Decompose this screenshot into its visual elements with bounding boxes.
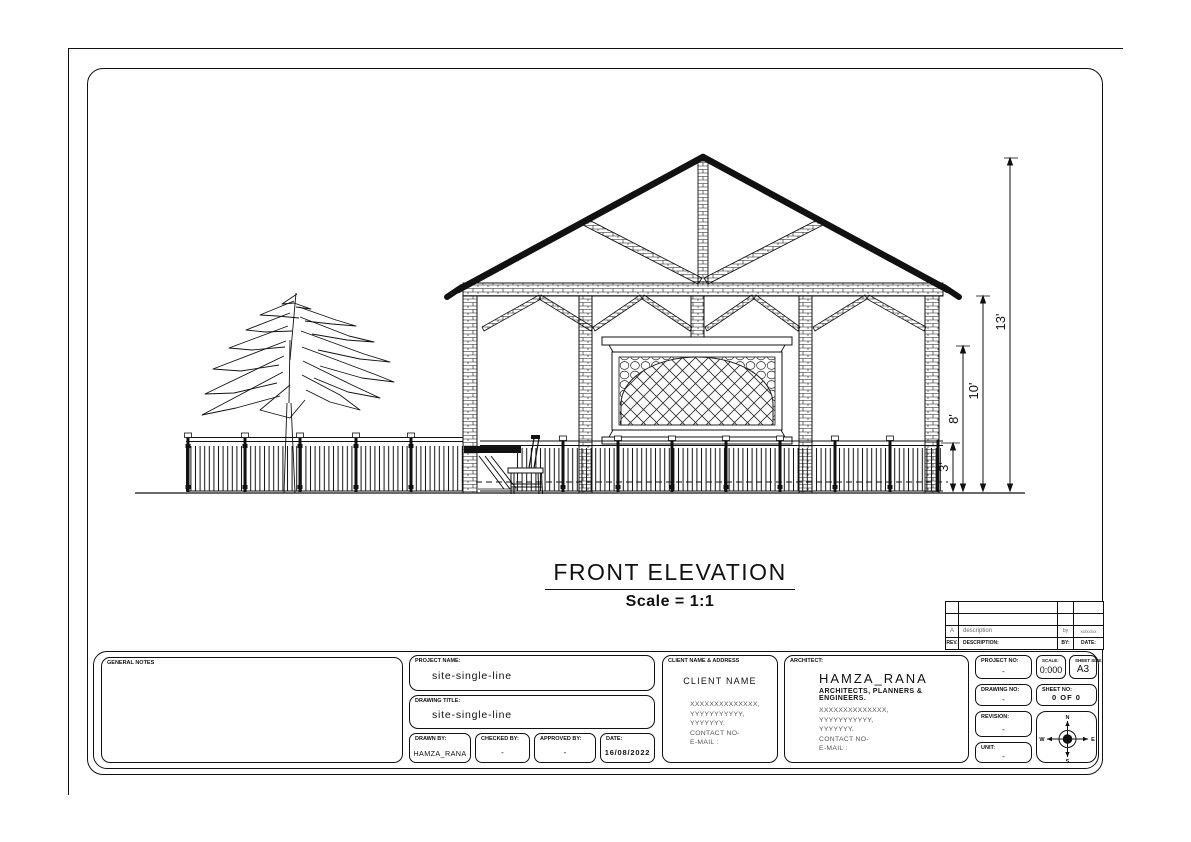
date-label: DATE: xyxy=(606,736,622,742)
sheet-size-value: A3 xyxy=(1070,664,1096,675)
drawing-title-value: site-single-line xyxy=(432,709,512,721)
rev-empty-cell xyxy=(1057,613,1073,625)
general-notes-box: GENERAL NOTES xyxy=(101,657,403,763)
dim-3ft: 3' xyxy=(936,462,951,472)
rev-empty-cell xyxy=(958,613,1057,625)
view-scale: Scale = 1:1 xyxy=(520,593,820,611)
rev-empty-cell xyxy=(945,613,958,625)
king-post xyxy=(698,161,708,283)
revision-label: REVISION: xyxy=(981,714,1009,720)
date-box: DATE: 16/08/2022 xyxy=(600,733,655,763)
unit-box: UNIT: - xyxy=(975,742,1032,763)
client-box: CLIENT NAME & ADDRESS CLIENT NAME XXXXXX… xyxy=(662,655,778,763)
scale-box: SCALE: 0:000 xyxy=(1036,655,1066,679)
client-address-line: YYYYYYYYYYY, xyxy=(690,710,760,720)
unit-value: - xyxy=(976,752,1031,761)
view-title: FRONT ELEVATION xyxy=(545,559,794,590)
checked-by-value: - xyxy=(476,748,529,757)
north-compass-icon: N E S W xyxy=(1037,712,1098,764)
drawing-no-label: DRAWING NO: xyxy=(981,687,1019,693)
project-name-box: PROJECT NAME: site-single-line xyxy=(409,655,655,691)
compass-n: N xyxy=(1066,715,1070,721)
project-no-box: PROJECT NO: - xyxy=(975,655,1032,679)
drawn-by-box: DRAWN BY: HAMZA_RANA xyxy=(409,733,471,763)
checked-by-box: CHECKED BY: - xyxy=(475,733,530,763)
architect-label: ARCHITECT: xyxy=(790,658,823,664)
drawing-title-caption: FRONT ELEVATION Scale = 1:1 xyxy=(520,559,820,611)
architect-name: HAMZA_RANA xyxy=(819,671,928,686)
rev-empty-cell xyxy=(1073,613,1103,625)
compass-e: E xyxy=(1091,737,1095,743)
general-notes-label: GENERAL NOTES xyxy=(107,660,154,666)
rev-header-date: DATE: xyxy=(1073,637,1103,649)
dimension-labels: 3' 8' 10' 13' xyxy=(936,314,1008,472)
approved-by-value: - xyxy=(535,748,595,757)
rev-empty-cell xyxy=(958,601,1057,613)
architect-address: XXXXXXXXXXXXXX, YYYYYYYYYYY, YYYYYYY. CO… xyxy=(819,706,889,754)
eave-beam xyxy=(463,283,943,296)
rev-empty-cell xyxy=(945,601,958,613)
dim-13ft: 13' xyxy=(993,314,1008,331)
revision-table: A description by xx/xx/xx REV. DESCRIPTI… xyxy=(945,601,1104,650)
railing-left xyxy=(185,433,464,492)
rev-row-date: xx/xx/xx xyxy=(1073,625,1103,637)
drawing-sheet: 3' 8' 10' 13' FRONT ELEVATION Scale = 1:… xyxy=(0,0,1191,842)
approved-by-label: APPROVED BY: xyxy=(540,736,581,742)
drawing-title-label: DRAWING TITLE: xyxy=(415,698,460,704)
dim-8ft: 8' xyxy=(946,414,961,424)
project-name-value: site-single-line xyxy=(432,670,512,682)
client-address-line: CONTACT NO- xyxy=(690,729,760,739)
drawn-by-value: HAMZA_RANA xyxy=(410,749,470,758)
drawn-by-label: DRAWN BY: xyxy=(415,736,446,742)
rev-empty-cell xyxy=(1057,601,1073,613)
project-name-label: PROJECT NAME: xyxy=(415,658,461,664)
drawing-no-value: - xyxy=(976,695,1031,704)
project-no-value: - xyxy=(976,667,1031,676)
revision-value: - xyxy=(976,725,1031,734)
dim-10ft: 10' xyxy=(966,383,981,400)
rev-header-by: BY: xyxy=(1057,637,1073,649)
sheet-no-value: 0 OF 0 xyxy=(1037,693,1096,702)
architect-subtitle: ARCHITECTS, PLANNERS & ENGINEERS. xyxy=(819,688,968,702)
scale-value: 0:000 xyxy=(1037,665,1065,675)
client-address-line: E-MAIL : xyxy=(690,738,760,748)
project-no-label: PROJECT NO: xyxy=(981,658,1019,664)
checked-by-label: CHECKED BY: xyxy=(481,736,519,742)
sheet-size-box: SHEET SIZE: A3 xyxy=(1069,655,1097,679)
rev-row-letter: A xyxy=(945,625,958,637)
architect-address-line: YYYYYYYYYYY, xyxy=(819,716,889,726)
scale-label: SCALE: xyxy=(1042,658,1059,663)
date-value: 16/08/2022 xyxy=(601,748,654,757)
architect-address-line: YYYYYYY. xyxy=(819,725,889,735)
rev-header-rev: REV. xyxy=(945,637,958,649)
client-address-line: XXXXXXXXXXXXXX, xyxy=(690,700,760,710)
rev-row-description: description xyxy=(958,625,1057,637)
drawing-no-box: DRAWING NO: - xyxy=(975,684,1032,706)
client-address-line: YYYYYYY. xyxy=(690,719,760,729)
architect-address-line: E-MAIL : xyxy=(819,744,889,754)
rev-empty-cell xyxy=(1073,601,1103,613)
revision-box: REVISION: - xyxy=(975,711,1032,737)
sheet-no-box: SHEET NO: 0 OF 0 xyxy=(1036,684,1097,706)
lattice-panel xyxy=(602,337,792,444)
compass-w: W xyxy=(1039,737,1045,743)
client-name: CLIENT NAME xyxy=(663,676,777,686)
unit-label: UNIT: xyxy=(981,745,995,751)
architect-address-line: XXXXXXXXXXXXXX, xyxy=(819,706,889,716)
compass-s: S xyxy=(1066,759,1070,764)
client-address: XXXXXXXXXXXXXX, YYYYYYYYYYY, YYYYYYY. CO… xyxy=(690,700,760,748)
approved-by-box: APPROVED BY: - xyxy=(534,733,596,763)
compass-box: N E S W xyxy=(1036,711,1097,763)
architect-address-line: CONTACT NO- xyxy=(819,735,889,745)
client-label: CLIENT NAME & ADDRESS xyxy=(668,658,739,664)
rev-header-description: DESCRIPTION: xyxy=(958,637,1057,649)
sheet-size-label: SHEET SIZE: xyxy=(1075,658,1103,663)
rev-row-by: by xyxy=(1057,625,1073,637)
drawing-title-box: DRAWING TITLE: site-single-line xyxy=(409,695,655,729)
architect-box: ARCHITECT: HAMZA_RANA ARCHITECTS, PLANNE… xyxy=(784,655,969,763)
